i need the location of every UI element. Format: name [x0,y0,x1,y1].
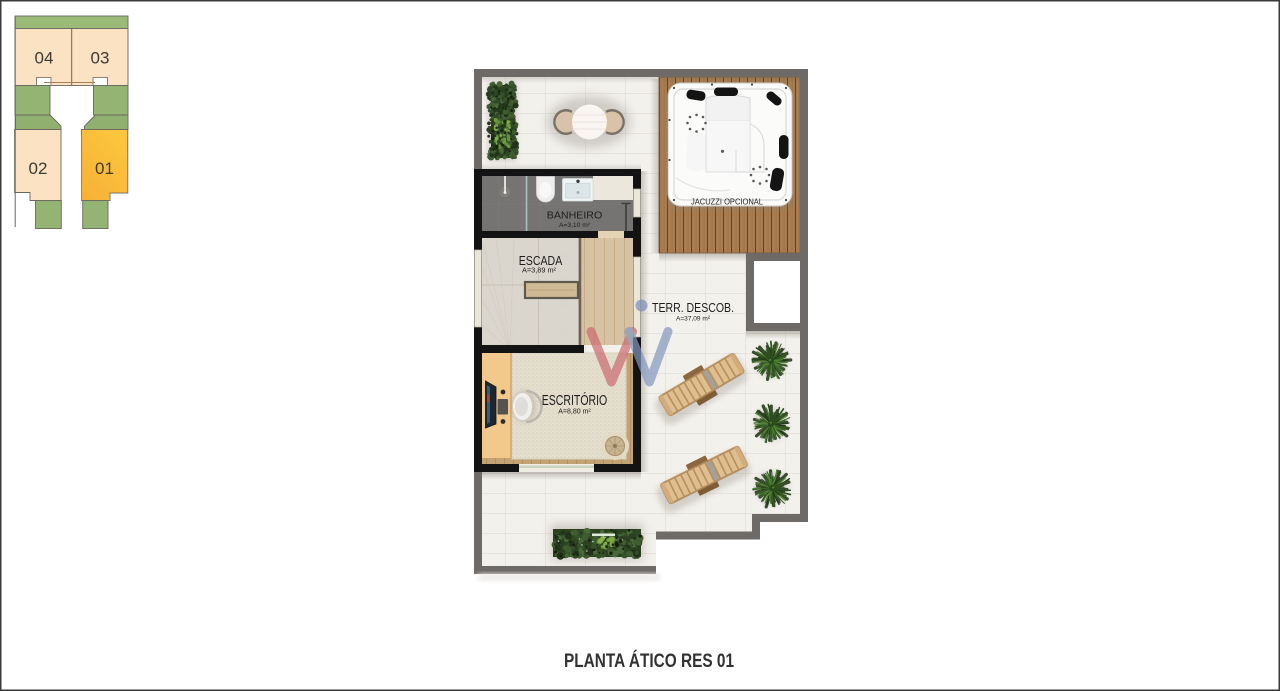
svg-text:TERR. DESCOB.: TERR. DESCOB. [652,300,734,315]
svg-text:ESCADA: ESCADA [519,253,563,268]
svg-text:A=37,09 m²: A=37,09 m² [676,316,711,323]
svg-text:03: 03 [91,49,110,68]
svg-text:A=3,10 m²: A=3,10 m² [559,222,591,229]
svg-text:A=3,89 m²: A=3,89 m² [522,268,557,275]
svg-text:JACUZZI OPCIONAL: JACUZZI OPCIONAL [691,198,764,207]
svg-text:02: 02 [29,159,48,178]
svg-text:BANHEIRO: BANHEIRO [547,210,603,222]
svg-text:A=8,80 m²: A=8,80 m² [558,409,591,416]
svg-text:ESCRITÓRIO: ESCRITÓRIO [542,392,608,409]
svg-text:PLANTA ÁTICO RES 01: PLANTA ÁTICO RES 01 [564,650,734,672]
svg-text:04: 04 [35,49,54,68]
svg-text:01: 01 [95,159,114,178]
